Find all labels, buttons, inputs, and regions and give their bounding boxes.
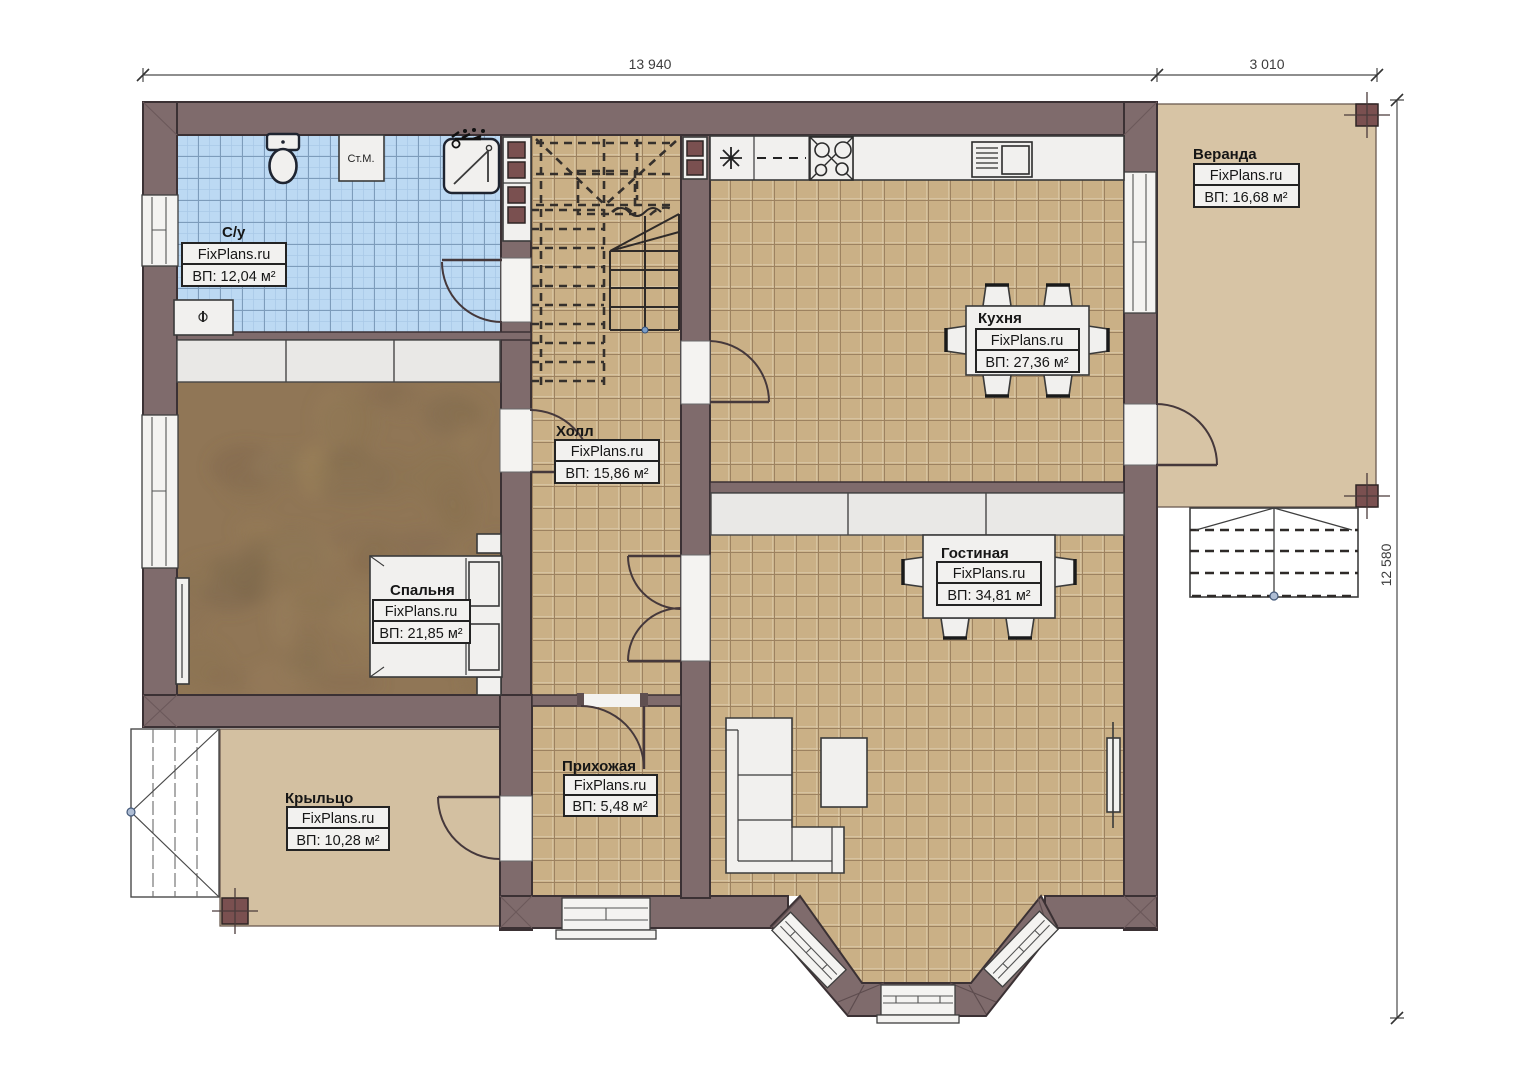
svg-text:ВП: 12,04 м²: ВП: 12,04 м² (192, 269, 275, 285)
svg-text:13 940: 13 940 (629, 56, 672, 72)
svg-text:FixPlans.ru: FixPlans.ru (302, 811, 375, 827)
svg-text:ВП: 5,48 м²: ВП: 5,48 м² (572, 799, 647, 815)
svg-text:FixPlans.ru: FixPlans.ru (991, 333, 1064, 349)
svg-text:ВП: 15,86 м²: ВП: 15,86 м² (565, 466, 648, 482)
svg-text:ВП: 21,85 м²: ВП: 21,85 м² (379, 626, 462, 642)
svg-text:Гостиная: Гостиная (941, 545, 1009, 562)
svg-text:С/у: С/у (222, 224, 246, 241)
svg-text:Спальня: Спальня (390, 582, 455, 599)
svg-text:12 580: 12 580 (1378, 543, 1394, 586)
svg-text:Кухня: Кухня (978, 310, 1022, 327)
svg-text:Веранда: Веранда (1193, 146, 1257, 163)
svg-text:ВП: 16,68 м²: ВП: 16,68 м² (1204, 190, 1287, 206)
svg-text:ВП: 34,81 м²: ВП: 34,81 м² (947, 588, 1030, 604)
svg-text:FixPlans.ru: FixPlans.ru (198, 247, 271, 263)
svg-text:FixPlans.ru: FixPlans.ru (953, 566, 1026, 582)
svg-text:FixPlans.ru: FixPlans.ru (574, 778, 647, 794)
svg-text:FixPlans.ru: FixPlans.ru (571, 444, 644, 460)
svg-text:FixPlans.ru: FixPlans.ru (385, 604, 458, 620)
svg-text:Крыльцо: Крыльцо (285, 790, 353, 807)
svg-text:Холл: Холл (556, 423, 594, 440)
svg-text:3 010: 3 010 (1249, 56, 1284, 72)
svg-text:ВП: 27,36 м²: ВП: 27,36 м² (985, 355, 1068, 371)
svg-text:Ст.М.: Ст.М. (347, 153, 374, 165)
svg-text:ВП: 10,28 м²: ВП: 10,28 м² (296, 833, 379, 849)
svg-text:Прихожая: Прихожая (562, 758, 636, 775)
svg-text:FixPlans.ru: FixPlans.ru (1210, 168, 1283, 184)
